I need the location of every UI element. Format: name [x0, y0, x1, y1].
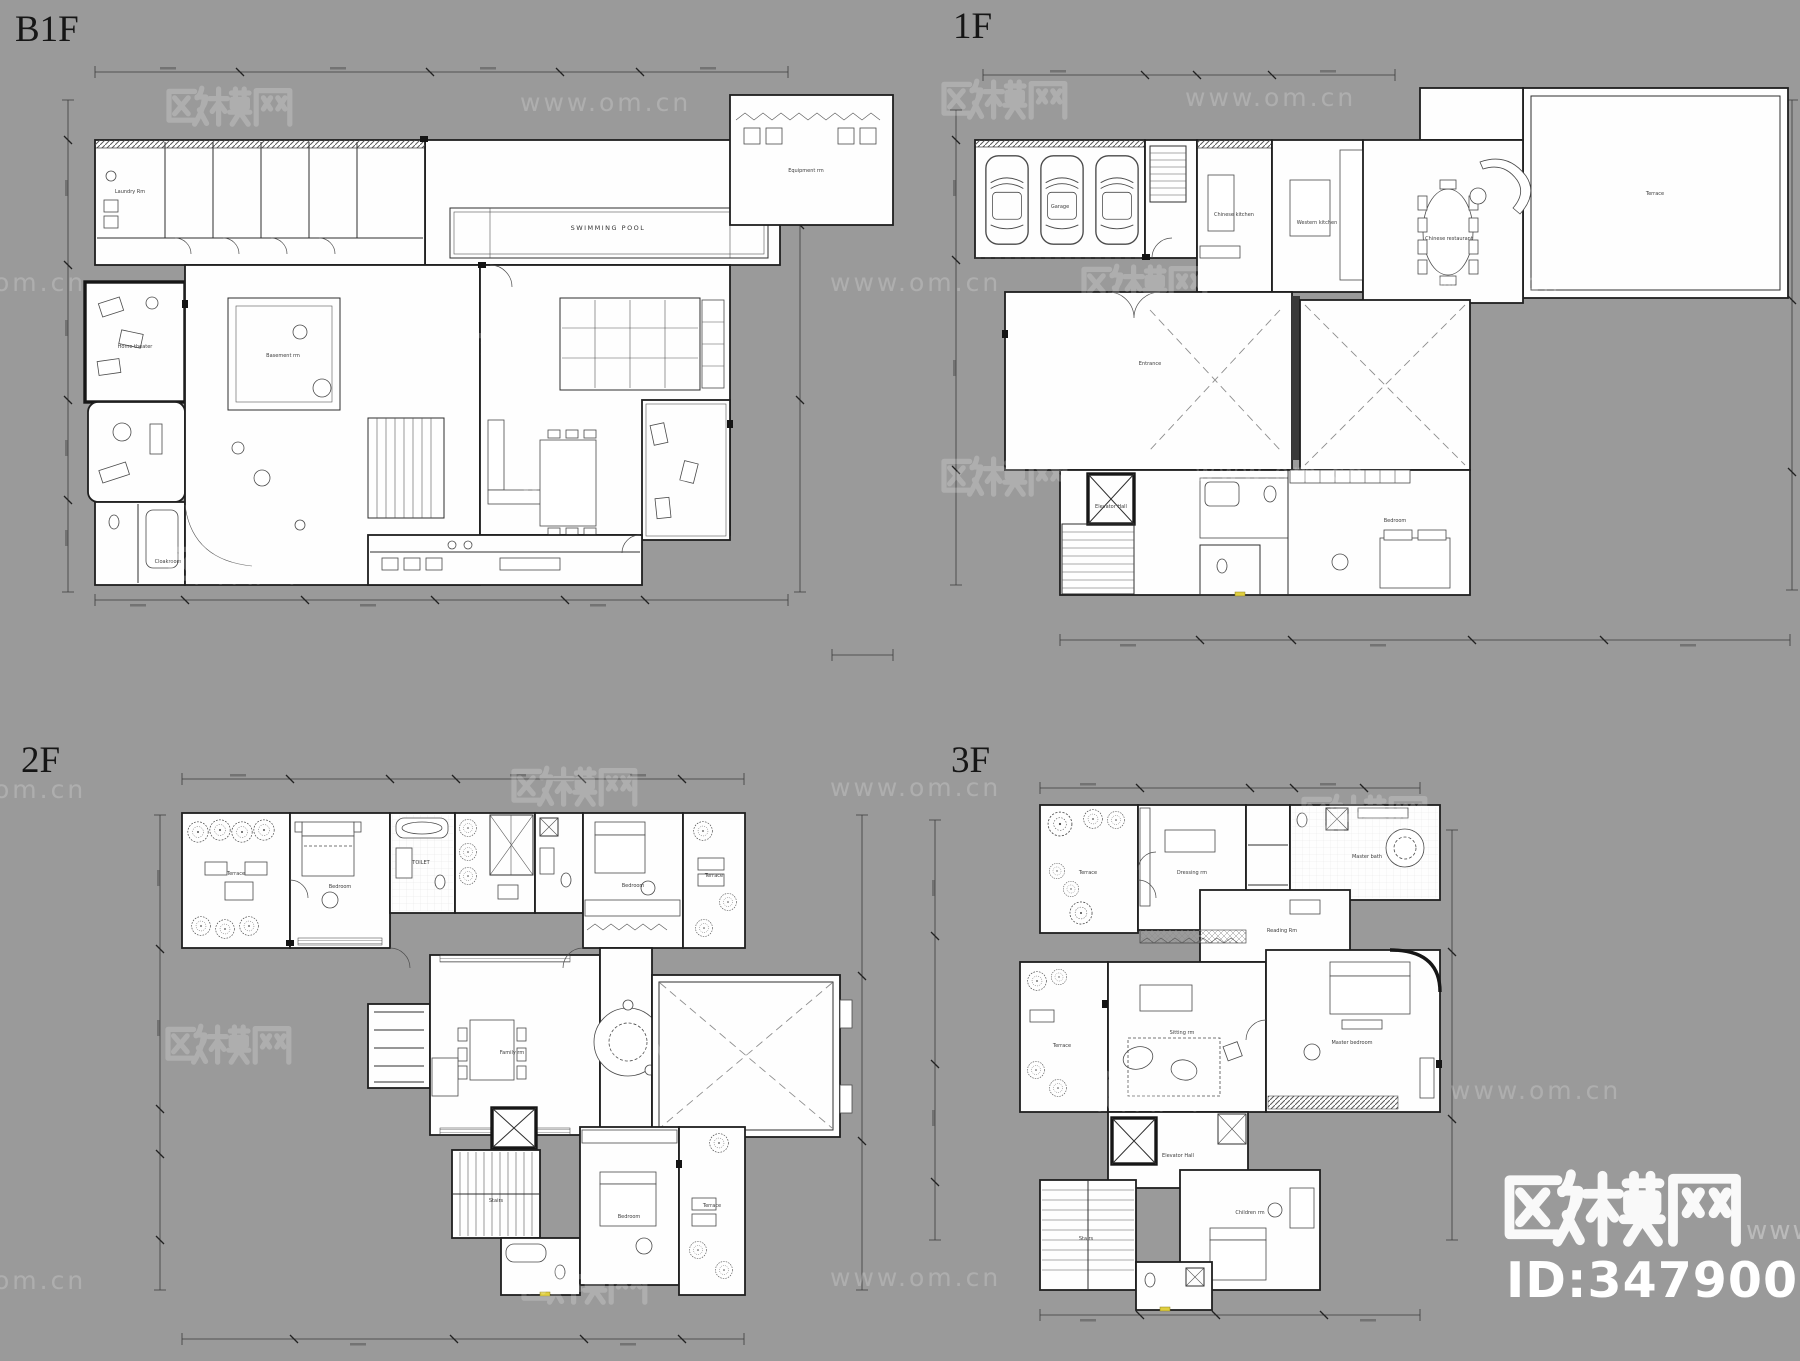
1f-terrace-ext — [1420, 88, 1523, 140]
room-label: Terrace — [704, 873, 723, 879]
room-label: Laundry Rm — [115, 189, 145, 195]
room-label: Bedroom — [618, 1214, 641, 1220]
watermark-tile: www.om.cn — [520, 88, 691, 117]
watermark-tile: www.om.cn — [520, 470, 691, 499]
watermark-tile — [1070, 1070, 1198, 1114]
watermark-tile — [164, 1023, 292, 1067]
watermark-tile: www.om.cn — [0, 775, 86, 804]
b1f-room-strip — [95, 140, 425, 265]
room-label: Family rm — [500, 1050, 525, 1056]
watermark-www-partial: www. — [1746, 1216, 1800, 1246]
room-label: Master bath — [1352, 854, 1382, 860]
watermark-tile: www.om.cn — [1390, 268, 1561, 297]
watermark-tile — [510, 765, 638, 809]
room-label: Terrace — [1052, 1043, 1071, 1049]
watermark-tile: www.om.cn — [0, 268, 86, 297]
watermark-tile: www.om.cn — [0, 1266, 86, 1295]
watermark-tile: www.om.cn — [1195, 458, 1366, 487]
room-label: Sitting rm — [1170, 1030, 1195, 1036]
floor-label-b1f: B1F — [15, 11, 79, 48]
watermark-tile: www.om.cn — [1450, 1076, 1621, 1105]
watermark-tile — [940, 455, 1068, 499]
b1f-equipment-room — [730, 95, 893, 225]
watermark-tile: www.om.cn — [1185, 83, 1356, 112]
room-label: Terrace — [226, 871, 245, 877]
watermark-tile — [940, 78, 1068, 122]
watermark-tile: www.om.cn — [830, 268, 1001, 297]
room-label: Chinese restaurant — [1425, 236, 1473, 242]
floor-plan-3f: Terrace Dressing rm Master bath Reading … — [929, 782, 1458, 1322]
room-label: Terrace — [1078, 870, 1097, 876]
room-label: Entrance — [1139, 361, 1161, 367]
site-logo-omw — [1502, 1168, 1742, 1251]
screenshot-root: Laundry Rm Basement rm SWIMMING POOL Equ… — [0, 0, 1800, 1361]
room-label: Elevator Hall — [1095, 504, 1127, 510]
2f-bookshelf — [368, 1004, 430, 1088]
room-label: Reading Rm — [1267, 928, 1297, 934]
room-label: Elevator Hall — [1162, 1153, 1194, 1159]
room-label: Terrace — [702, 1203, 721, 1209]
room-label: Equipment rm — [788, 168, 824, 174]
room-label: Home theater — [118, 344, 154, 350]
watermark-tile: www.om.cn — [830, 1263, 1001, 1292]
room-label: TOILET — [411, 860, 430, 866]
2f-terrace-bottom — [679, 1127, 745, 1295]
1f-door-marker — [1235, 592, 1245, 596]
floor-label-2f: 2F — [21, 742, 60, 779]
room-label: Terrace — [1645, 191, 1664, 197]
site-watermark: www. ID:3479003 — [1502, 1168, 1800, 1318]
b1f-gym — [88, 402, 185, 502]
watermark-tile: www.om.cn — [608, 1033, 779, 1062]
watermark-tile — [167, 543, 295, 587]
room-label: SWIMMING POOL — [571, 224, 646, 232]
3f-door-marker — [1160, 1307, 1170, 1311]
room-label: Bedroom — [622, 883, 645, 889]
1f-entrance-hall — [1005, 292, 1292, 470]
room-label: Chinese kitchen — [1214, 212, 1254, 218]
room-label: Western kitchen — [1297, 220, 1338, 226]
room-label: Bedroom — [329, 884, 352, 890]
room-label: Dressing rm — [1177, 870, 1207, 876]
watermark-tile — [1300, 793, 1428, 837]
watermark-tile: www.om.cn — [830, 773, 1001, 802]
room-label: Basement rm — [266, 353, 300, 359]
2f-court — [455, 813, 535, 913]
model-id-text: ID:3479003 — [1506, 1252, 1800, 1309]
b1f-pool-hall — [425, 140, 780, 265]
watermark-tile — [520, 1263, 648, 1307]
room-label: Master bedroom — [1331, 1040, 1372, 1046]
room-label: Children rm — [1235, 1210, 1264, 1216]
1f-garage — [975, 140, 1145, 258]
floor-plan-1f: Garage Chinese kitchen Western kitchen C… — [832, 69, 1798, 661]
watermark-tile — [385, 330, 513, 374]
watermark-tile — [165, 85, 293, 129]
1f-mudroom — [1145, 140, 1197, 258]
room-label: Stairs — [1079, 1236, 1094, 1242]
room-label: Garage — [1051, 204, 1069, 210]
floor-label-1f: 1F — [953, 8, 992, 45]
floor-plan-canvas: Laundry Rm Basement rm SWIMMING POOL Equ… — [0, 0, 1800, 1361]
room-label: Stairs — [489, 1198, 504, 1204]
watermark-tile — [1080, 263, 1208, 307]
room-label: Bedroom — [1384, 518, 1407, 524]
3f-terrace-tl — [1040, 805, 1138, 933]
